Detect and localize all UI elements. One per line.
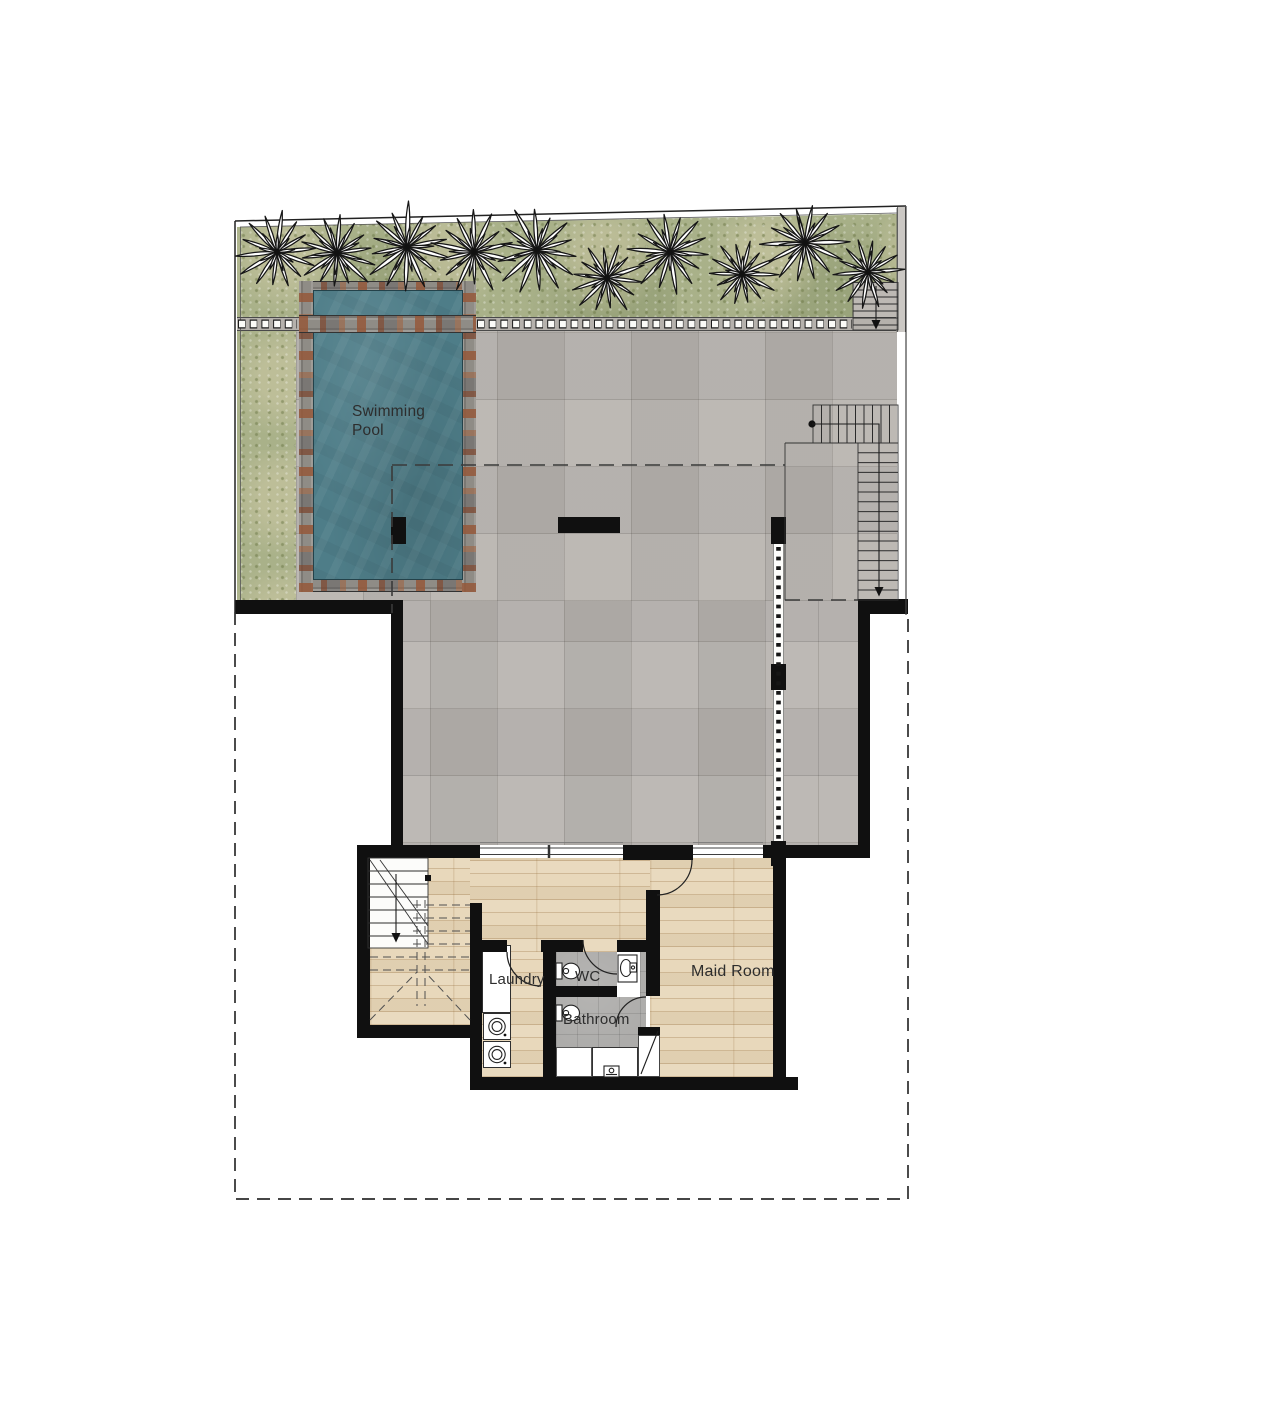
boundary-walkway-strip (897, 207, 906, 332)
wall-segment (638, 1027, 660, 1035)
room-label-maid-room: Maid Room (691, 962, 775, 981)
column (771, 517, 786, 544)
column (391, 517, 406, 544)
shower-tray (592, 1047, 638, 1077)
room-label-laundry: Laundry (489, 970, 545, 989)
column (771, 841, 786, 866)
window (480, 845, 623, 858)
wall-segment (543, 940, 556, 1077)
room-label-wc: WC (575, 967, 600, 986)
garden-strip-left (237, 330, 296, 601)
wall-segment (470, 903, 482, 1090)
room-label-swimming-pool: Swimming Pool (352, 402, 432, 440)
wall-segment (858, 599, 908, 614)
wall-segment (617, 940, 646, 952)
window (693, 845, 763, 858)
pool-edge-beam (299, 315, 476, 333)
wall-segment (556, 940, 583, 952)
wall-segment (391, 614, 403, 845)
column (771, 664, 786, 690)
wall-segment (623, 845, 693, 860)
wall-segment (858, 614, 870, 846)
terrace-lower-deck (403, 601, 858, 846)
louver-partition (773, 543, 784, 845)
wc-sink-niche (617, 952, 640, 997)
wall-segment (773, 845, 786, 1090)
wall-segment (470, 1077, 798, 1090)
room-label-bathroom: Bathroom (563, 1010, 630, 1029)
corner-closet (638, 1035, 660, 1077)
washing-machine-1 (483, 1013, 511, 1040)
wall-segment (357, 845, 370, 1038)
wall-segment (470, 940, 507, 952)
wall-segment (357, 1025, 482, 1038)
floor-plan-canvas: Swimming Pool Laundry WC Bathroom Maid R… (0, 0, 1280, 1409)
bath-vanity (556, 1047, 592, 1077)
stair-flight-lower (368, 858, 428, 948)
wall-segment (646, 890, 660, 996)
wall-segment (235, 600, 403, 614)
washing-machine-2 (483, 1041, 511, 1068)
wall-segment (541, 940, 556, 952)
wall-segment (357, 845, 480, 858)
column (558, 517, 620, 533)
